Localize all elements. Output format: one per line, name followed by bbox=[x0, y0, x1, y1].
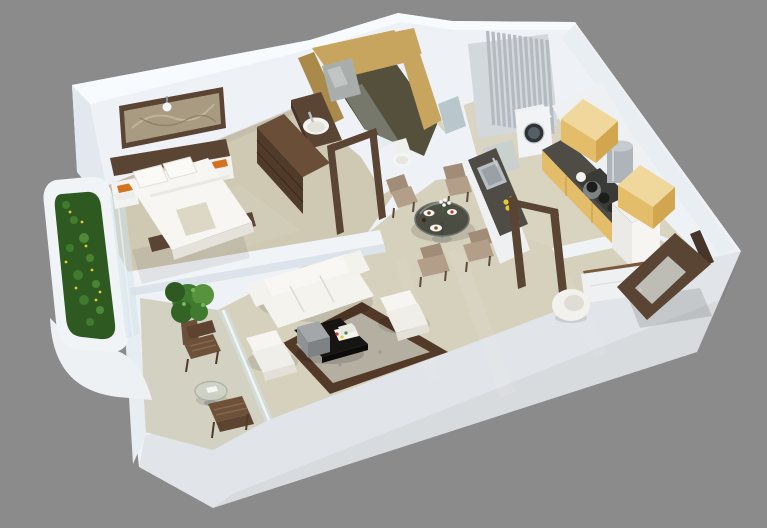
pouf-seat bbox=[564, 295, 584, 311]
floor-plan-canvas bbox=[0, 0, 767, 528]
cooking-pot bbox=[599, 193, 610, 204]
cup bbox=[422, 218, 426, 222]
door-handle bbox=[638, 288, 641, 291]
magazine-accent bbox=[335, 332, 338, 335]
wall-lamp bbox=[163, 103, 172, 112]
food bbox=[427, 211, 431, 215]
food bbox=[450, 210, 453, 213]
washing-machine-drum bbox=[528, 127, 540, 139]
magazine-accent bbox=[340, 335, 343, 338]
floor-plan-render: 3D isometric floor plan render of a one-… bbox=[0, 0, 767, 528]
wash-basin-bowl bbox=[307, 122, 325, 133]
rug-speckle bbox=[339, 364, 342, 367]
rug-speckle bbox=[379, 351, 382, 354]
food bbox=[434, 226, 438, 230]
magazine-accent bbox=[344, 331, 347, 334]
toilet-seat bbox=[396, 156, 408, 164]
kettle bbox=[576, 172, 586, 182]
cooking-pot bbox=[587, 182, 598, 193]
